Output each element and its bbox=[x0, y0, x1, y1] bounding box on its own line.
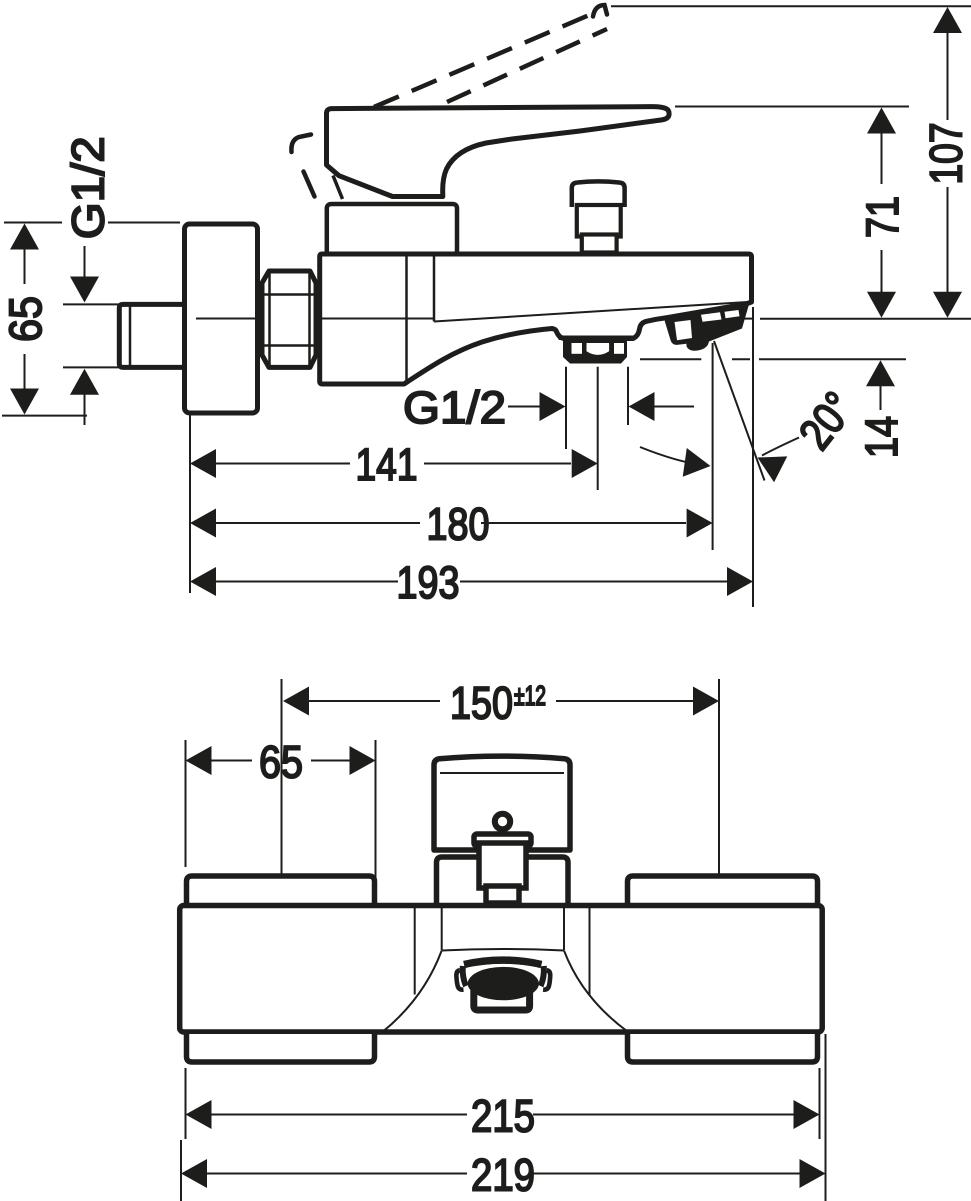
svg-text:141: 141 bbox=[356, 439, 418, 490]
svg-text:G1/2: G1/2 bbox=[63, 136, 114, 239]
svg-text:180: 180 bbox=[427, 499, 490, 550]
svg-text:65: 65 bbox=[0, 296, 51, 342]
svg-text:219: 219 bbox=[471, 1150, 535, 1201]
svg-text:71: 71 bbox=[857, 196, 908, 238]
svg-text:65: 65 bbox=[259, 737, 303, 788]
svg-text:215: 215 bbox=[471, 1091, 535, 1142]
svg-text:193: 193 bbox=[397, 557, 460, 608]
svg-text:G1/2: G1/2 bbox=[403, 382, 506, 433]
svg-text:107: 107 bbox=[921, 123, 971, 185]
svg-text:±12: ±12 bbox=[514, 680, 546, 711]
svg-text:150: 150 bbox=[450, 678, 513, 729]
svg-text:14: 14 bbox=[856, 416, 907, 458]
